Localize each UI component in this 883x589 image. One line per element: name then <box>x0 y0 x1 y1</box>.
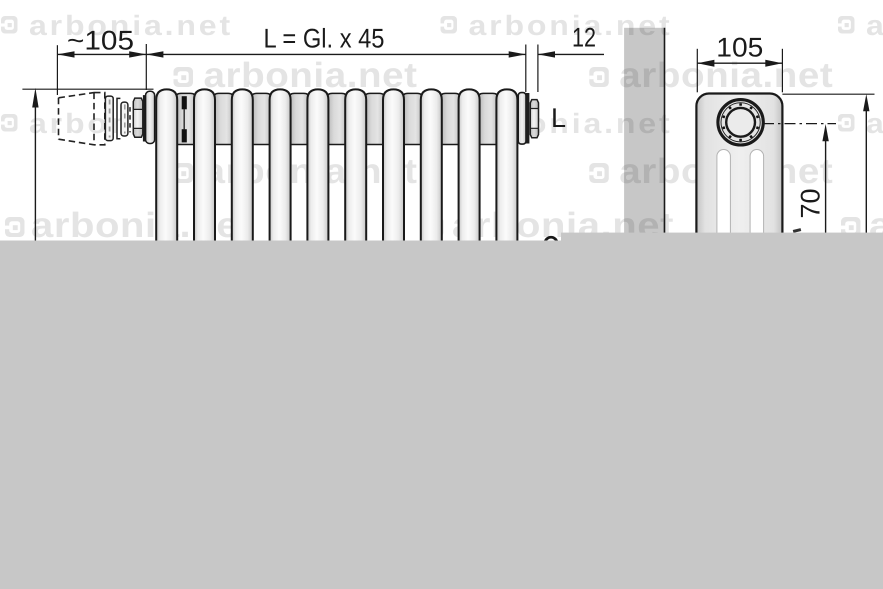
svg-text:arbonia.net: arbonia.net <box>866 108 883 139</box>
svg-text:105: 105 <box>716 32 763 62</box>
svg-text:arbonia.net: arbonia.net <box>866 10 883 41</box>
svg-text:arbonia.net: arbonia.net <box>204 56 418 95</box>
svg-text:L: L <box>551 103 566 133</box>
svg-text:70: 70 <box>796 189 826 219</box>
svg-text:~105: ~105 <box>67 26 134 56</box>
svg-text:L = Gl. x 45: L = Gl. x 45 <box>264 23 385 53</box>
svg-text:arbonia.net: arbonia.net <box>31 206 253 245</box>
svg-text:12: 12 <box>572 23 596 53</box>
